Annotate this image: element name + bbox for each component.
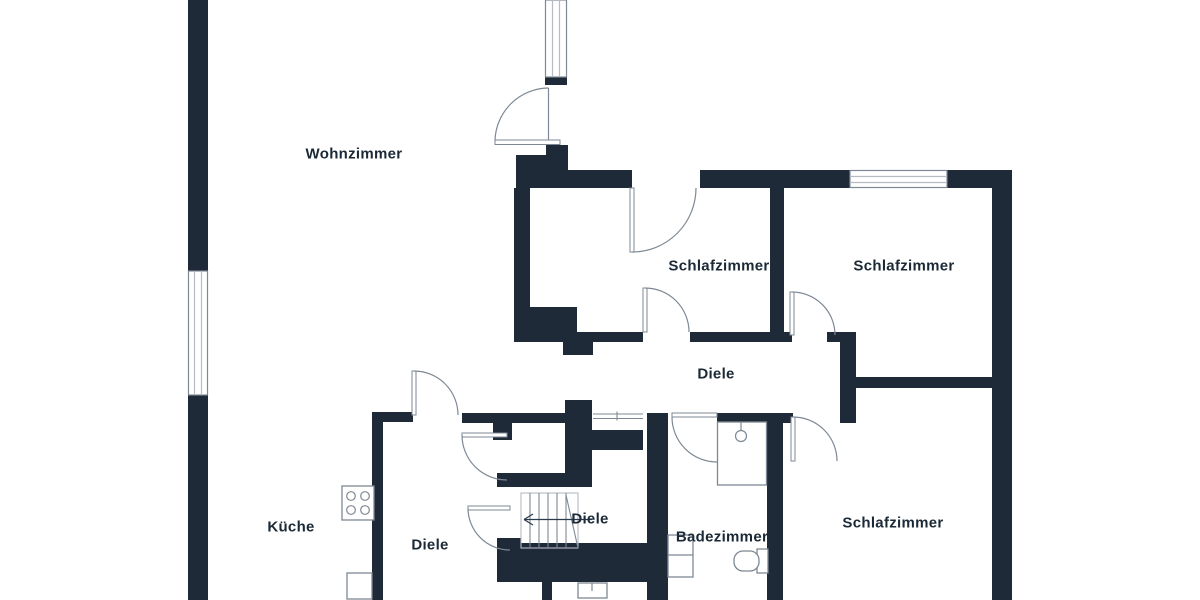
room-label-diele-treppe: Diele (571, 511, 608, 528)
floorplan: Wohnzimmer Schlafzimmer Schlafzimmer Die… (0, 0, 1200, 600)
wall-entry-corner-block (516, 155, 568, 188)
door-midroom-bottom-arc (643, 288, 689, 332)
toilet-icon (734, 549, 768, 573)
wall-step-block (563, 342, 593, 355)
wall-bath-right (767, 413, 783, 600)
stove-icon (342, 486, 374, 520)
wall-stub-b0 (493, 413, 512, 440)
window-top-right-wall (850, 171, 947, 188)
wall-kitchen-right (372, 412, 383, 600)
wall-right-divider (855, 377, 992, 388)
wall-junction-stub (827, 332, 840, 342)
wall-junction-bar (840, 332, 856, 423)
wall-midroom-sw-block (514, 307, 577, 342)
sliding-opening (593, 412, 643, 421)
wall-corridor-bottom-a (462, 413, 568, 423)
room-label-diele-flur: Diele (697, 366, 734, 383)
door-kitchen-arc (412, 371, 458, 415)
wall-left-outer-lower (188, 395, 208, 600)
wall-left-outer-upper (188, 0, 208, 271)
door-bedroom-right-arc (790, 292, 835, 335)
wall-closet-bottom (497, 473, 565, 487)
room-label-badezimmer: Badezimmer (676, 529, 768, 546)
wall-bottom-stub (542, 582, 552, 600)
door-bedroom-bottom-arc (791, 417, 837, 461)
room-label-kueche: Küche (267, 519, 314, 536)
room-label-schlafzimmer-rechts-oben: Schlafzimmer (853, 258, 954, 275)
wall-corridor-top-a (577, 332, 643, 342)
wall-kitchen-top (375, 412, 413, 422)
door-entry-arc (495, 88, 560, 145)
door-bathroom-arc (672, 413, 717, 462)
wall-top-b (700, 170, 850, 188)
wall-corridor-top-b (690, 332, 792, 342)
room-label-diele-unten-links: Diele (411, 537, 448, 554)
wall-entry-corner-step (546, 145, 568, 155)
wall-h1 (592, 430, 643, 450)
window-left-wall (189, 271, 208, 395)
wall-bedroom-divider (770, 188, 784, 342)
room-label-schlafzimmer-rechts-unten: Schlafzimmer (842, 515, 943, 532)
wall-midroom-left (514, 188, 530, 307)
wall-top-a (566, 170, 632, 188)
shower-icon (718, 422, 767, 485)
window-top-wall (546, 0, 567, 77)
room-label-wohnzimmer: Wohnzimmer (306, 146, 403, 163)
wall-right-outer (992, 170, 1012, 600)
wall-stair-bottom-block (497, 543, 655, 582)
bottom-doorway (578, 583, 607, 598)
wall-top-window-sill (545, 77, 567, 85)
kitchen-appliance (347, 573, 372, 599)
room-label-schlafzimmer-mitte: Schlafzimmer (668, 258, 769, 275)
door-midroom-top-arc (630, 188, 696, 252)
wall-closet-right (565, 400, 592, 487)
